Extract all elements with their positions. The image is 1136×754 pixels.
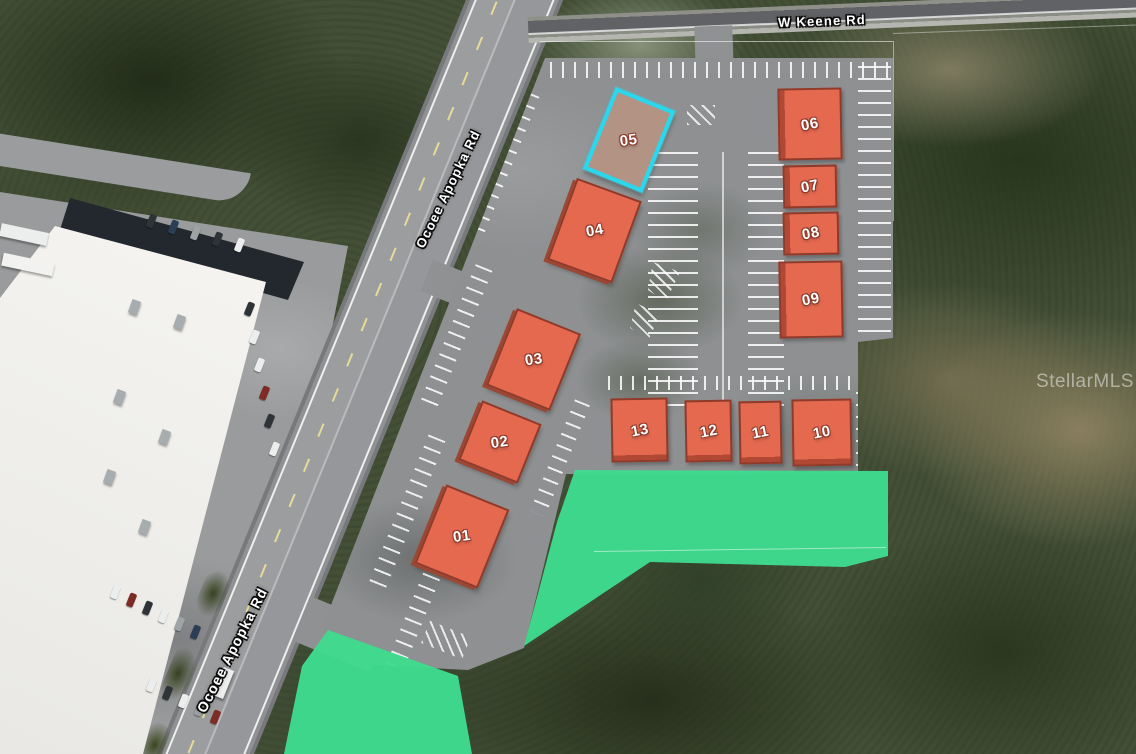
building-11: 11 [738,401,782,465]
building-09-label: 09 [801,289,822,309]
building-09: 09 [778,260,843,338]
aerial-site-plan-map: 01 02 03 04 05 06 07 08 09 10 11 12 13 W… [0,0,1136,754]
property-boundary-line [540,41,893,42]
property-boundary-line [893,41,894,221]
building-07: 07 [783,165,838,209]
building-10: 10 [791,398,852,466]
road-label-w-keene: W Keene Rd [778,12,866,30]
building-13: 13 [610,398,668,463]
building-13-label: 13 [629,420,650,440]
building-12-label: 12 [698,421,719,441]
building-02-label: 02 [490,432,510,451]
parking-stripes [608,376,856,390]
building-08-label: 08 [801,223,822,243]
building-08: 08 [783,212,840,256]
crosswalk-hatching [421,621,471,660]
parking-stripes [858,66,891,338]
hatched-island [687,105,715,125]
building-01-label: 01 [452,527,472,546]
building-03-label: 03 [524,350,544,369]
building-07-label: 07 [800,176,821,196]
building-06: 06 [777,87,842,160]
stellar-mls-watermark: StellarMLS [1036,371,1134,393]
building-10-label: 10 [812,422,833,442]
parking-stripes [550,62,888,78]
building-11-label: 11 [751,423,771,443]
building-05-label: 05 [619,130,639,149]
building-12: 12 [684,400,732,463]
building-04-label: 04 [584,221,604,241]
parking-aisle-line [722,152,724,408]
building-06-label: 06 [800,114,821,134]
